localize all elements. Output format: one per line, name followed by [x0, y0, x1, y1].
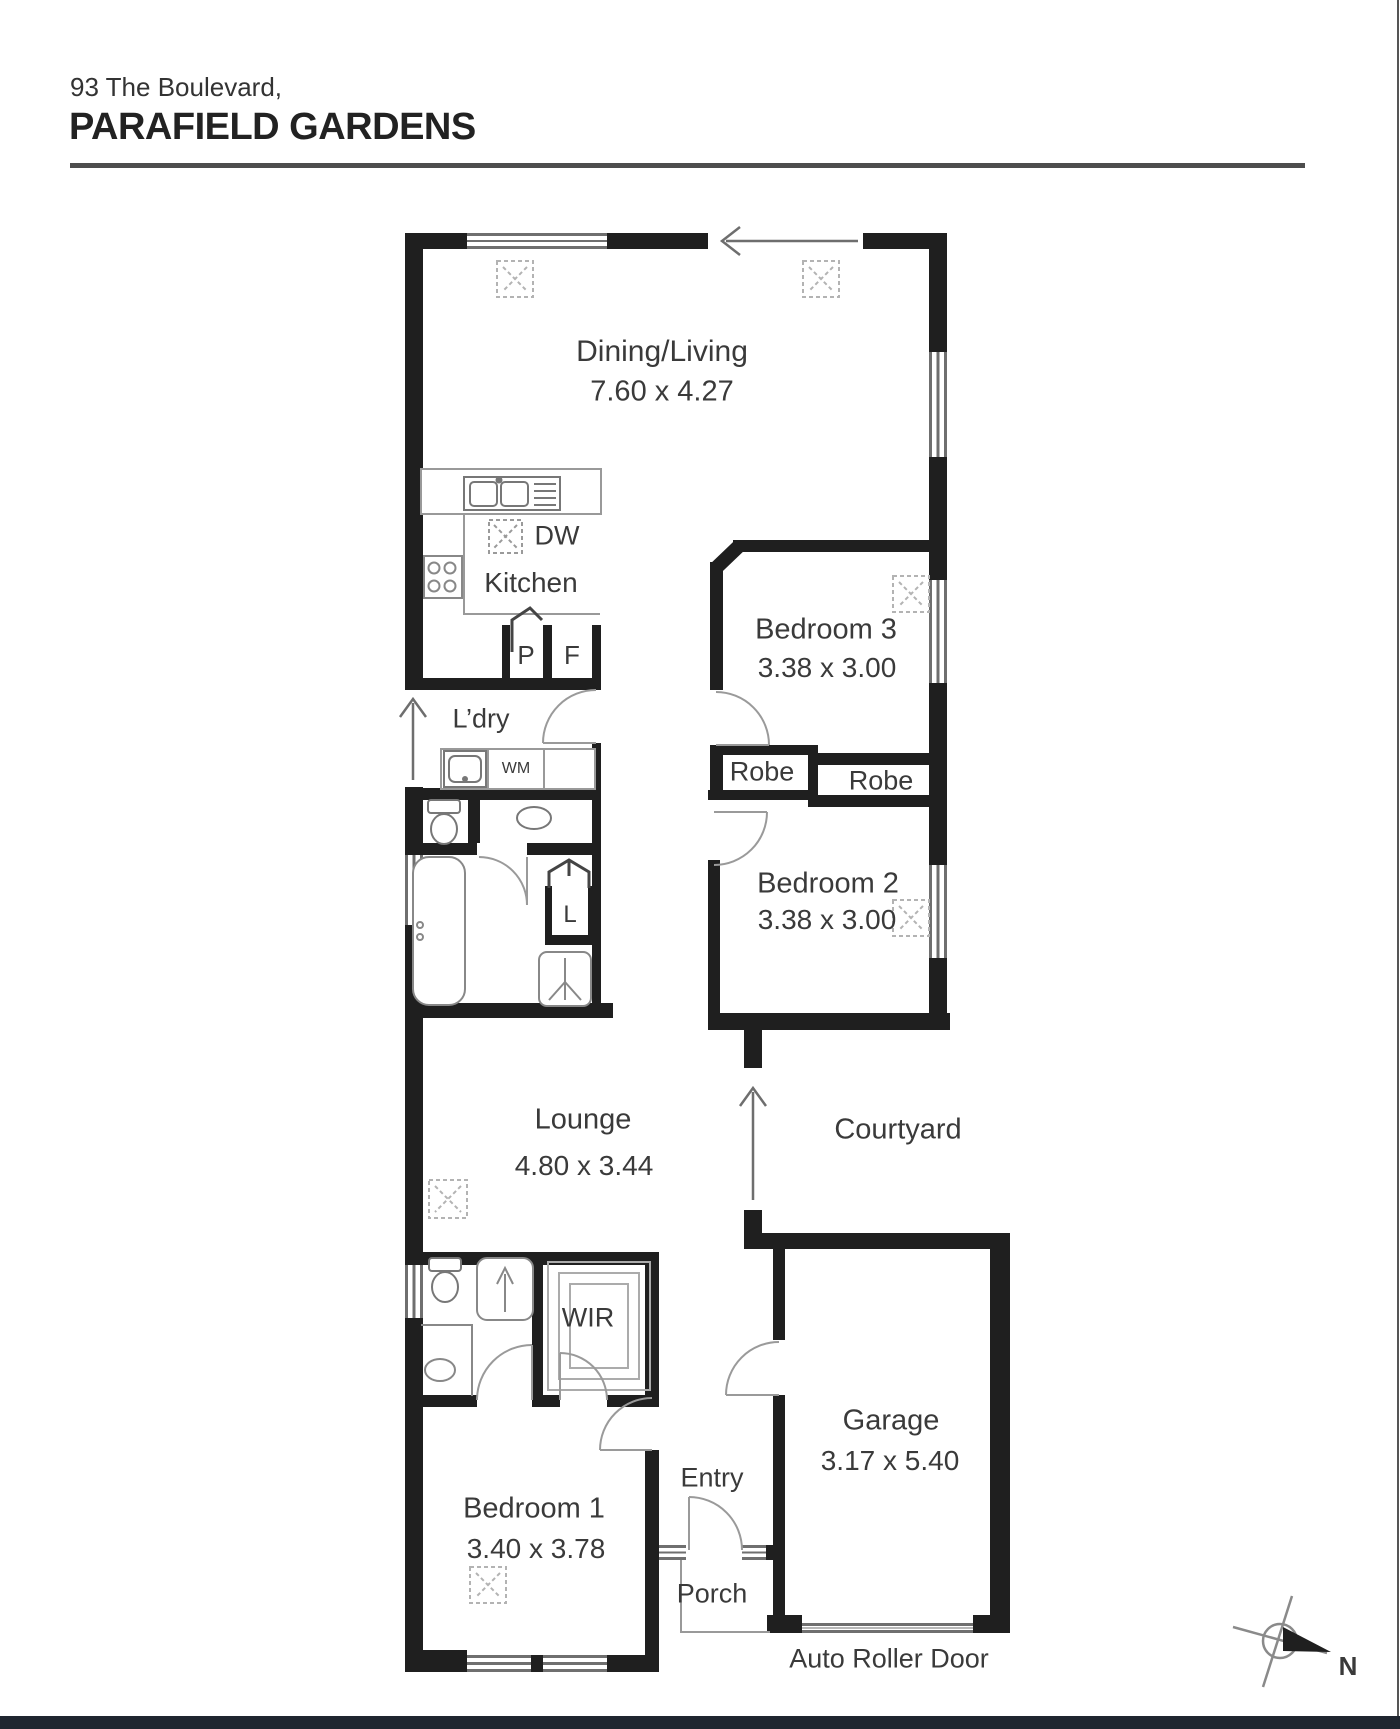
room-label-porch: Porch: [677, 1581, 748, 1608]
compass-icon: [1233, 1596, 1331, 1687]
roller-door-label: Auto Roller Door: [789, 1646, 989, 1673]
wall: [929, 233, 947, 352]
wall: [645, 1252, 659, 1397]
wall: [708, 790, 817, 800]
window: [543, 1655, 607, 1672]
room-label-kitchen: Kitchen: [484, 569, 577, 597]
fridge-label: F: [564, 642, 580, 668]
wall: [545, 886, 552, 940]
page-border-right: [1397, 0, 1399, 1729]
wall: [773, 1249, 785, 1340]
floor-plan: 93 The Boulevard, PARAFIELD GARDENS: [0, 0, 1400, 1729]
wall: [710, 745, 817, 755]
bench-divider: [543, 750, 545, 788]
title-rule: [70, 163, 1305, 168]
wall: [468, 800, 480, 843]
wall: [532, 1265, 543, 1395]
page-footer-bar: [0, 1716, 1400, 1729]
vanity-icon: [421, 1325, 472, 1396]
wall: [405, 1003, 613, 1018]
window: [467, 1655, 531, 1672]
room-label-bed3: Bedroom 3: [755, 616, 897, 645]
cooktop-icon: [424, 556, 462, 598]
wall: [744, 1233, 1010, 1249]
wall: [710, 562, 723, 690]
wall: [733, 540, 947, 552]
north-label: N: [1339, 1653, 1358, 1679]
room-dims-garage: 3.17 x 5.40: [821, 1447, 960, 1475]
wall: [818, 795, 947, 807]
room-label-bed1: Bedroom 1: [463, 1495, 605, 1524]
toilet-icon: [428, 800, 460, 844]
wall: [543, 625, 552, 690]
shower-icon: [539, 952, 591, 1006]
wall: [405, 843, 477, 855]
room-dims-bed2: 3.38 x 3.00: [758, 906, 897, 934]
room-label-garage: Garage: [843, 1407, 940, 1436]
window: [929, 352, 947, 457]
wall: [773, 1395, 785, 1615]
wall: [405, 1395, 477, 1407]
wall: [405, 233, 423, 690]
counter-edge: [463, 613, 600, 615]
wall: [405, 1650, 467, 1672]
wall: [744, 1030, 762, 1068]
courtyard-arrow: [740, 1088, 766, 1200]
wall: [405, 1318, 423, 1650]
laundry-exit-arrow: [400, 699, 426, 780]
room-dims-dining: 7.60 x 4.27: [590, 378, 734, 407]
sidelight-window: [742, 1545, 766, 1560]
suburb-title: PARAFIELD GARDENS: [69, 106, 476, 149]
wall: [532, 1395, 560, 1407]
linen-door-icon: [549, 860, 589, 888]
wall: [708, 860, 720, 1013]
wall: [973, 1615, 1010, 1633]
wall: [531, 1655, 543, 1672]
wall: [545, 935, 595, 945]
window: [929, 865, 947, 958]
washing-machine-label: WM: [502, 761, 530, 777]
wall: [588, 886, 595, 940]
room-label-lounge: Lounge: [535, 1106, 632, 1135]
roller-door-line: [802, 1623, 973, 1633]
sidelight-window: [659, 1545, 686, 1560]
wall: [990, 1233, 1010, 1615]
room-dims-lounge: 4.80 x 3.44: [515, 1152, 654, 1180]
wall: [929, 683, 947, 865]
room-label-bed2: Bedroom 2: [757, 870, 899, 899]
window: [405, 855, 423, 925]
basin-icon: [517, 807, 551, 829]
wall: [592, 625, 601, 690]
room-label-laundry: L’dry: [452, 706, 509, 733]
entry-arrow: [722, 227, 858, 255]
room-label-courtyard: Courtyard: [834, 1116, 961, 1145]
shower-icon: [477, 1258, 533, 1320]
room-label-wir: WIR: [562, 1305, 614, 1332]
wall: [766, 1545, 775, 1560]
wall: [708, 1013, 950, 1030]
dishwasher-icon: [489, 520, 522, 553]
linen-label: L: [563, 903, 576, 927]
porch-edge: [680, 1631, 770, 1633]
counter-edge: [463, 515, 465, 615]
wall: [808, 745, 818, 807]
bench-divider: [487, 750, 489, 788]
robe-label-bed2: Robe: [849, 768, 914, 795]
window: [929, 580, 947, 683]
wall: [645, 1450, 659, 1672]
dishwasher-label: DW: [535, 523, 580, 550]
wall: [405, 678, 502, 690]
window: [405, 1263, 423, 1318]
wall: [818, 753, 947, 765]
room-label-dining: Dining/Living: [576, 337, 748, 367]
wall: [607, 233, 708, 249]
pantry-label: P: [517, 642, 534, 668]
wall: [767, 1615, 802, 1633]
room-label-entry: Entry: [680, 1465, 743, 1492]
wall: [405, 1252, 653, 1265]
kitchen-bench: [420, 468, 602, 515]
wall: [527, 843, 592, 855]
wall: [405, 925, 423, 1263]
window: [467, 233, 607, 249]
wall: [607, 1655, 659, 1672]
room-dims-bed1: 3.40 x 3.78: [467, 1535, 606, 1563]
address-line: 93 The Boulevard,: [70, 72, 282, 103]
wall: [502, 625, 510, 690]
robe-label-bed3: Robe: [730, 759, 795, 786]
wall: [929, 457, 947, 580]
room-dims-bed3: 3.38 x 3.00: [758, 654, 897, 682]
wall: [405, 233, 467, 249]
